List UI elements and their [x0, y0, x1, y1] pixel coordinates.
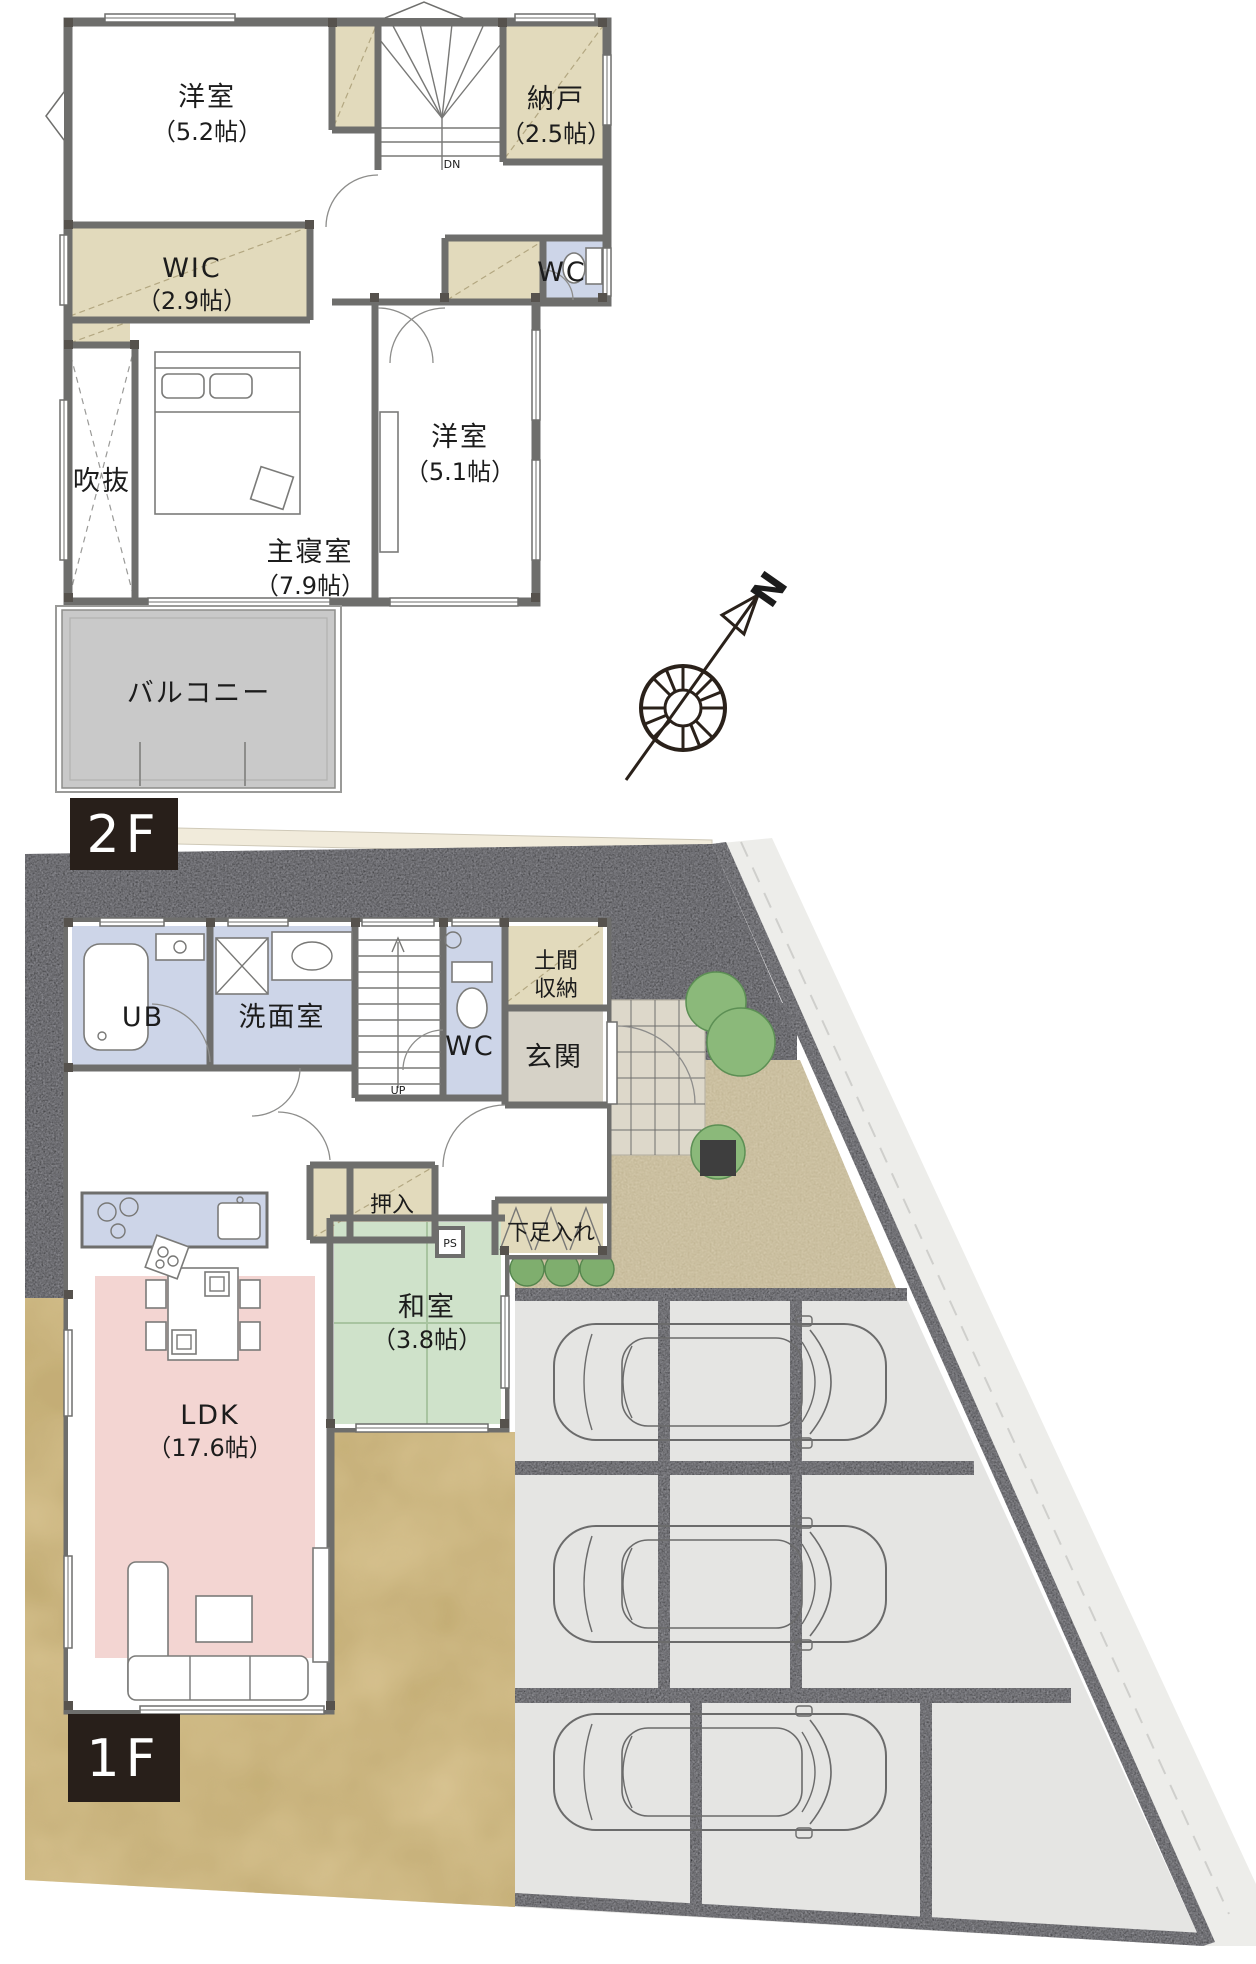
label-getabako: 下足入れ: [507, 1221, 595, 1246]
label-wic-size: （2.9帖）: [137, 287, 247, 315]
label-wc-1f: WC: [445, 1031, 495, 1062]
label-oshiire: 押入: [370, 1193, 414, 1218]
svg-text:1F: 1F: [87, 1729, 162, 1789]
label-wc-2f: WC: [537, 257, 587, 288]
compass-icon: N: [626, 564, 796, 780]
label-wic: WIC: [162, 253, 222, 284]
label-dn: DN: [444, 158, 461, 171]
label-nando-size: （2.5帖）: [501, 120, 611, 148]
label-y52-size: （5.2帖）: [152, 118, 262, 146]
label-nando: 納戸: [527, 84, 585, 115]
floorplan-svg: UB 洗面室 WC 玄関 土間 収納 押入 PS 下足入れ 和室 （3.8帖） …: [0, 0, 1256, 1960]
label-ldk-size: （17.6帖）: [147, 1434, 272, 1462]
label-ldk: LDK: [180, 1400, 240, 1431]
label-ps: PS: [443, 1237, 457, 1250]
label-y52: 洋室: [178, 82, 236, 113]
tv-board-2f: [380, 412, 398, 552]
label-master: 主寝室: [267, 537, 354, 568]
floor-2f: 洋室 （5.2帖） 納戸 （2.5帖） WIC （2.9帖） WC 吹抜 主寝室…: [46, 2, 611, 792]
svg-text:2F: 2F: [87, 805, 162, 865]
label-ub: UB: [122, 1002, 164, 1033]
tag-1f: 1F: [68, 1714, 180, 1802]
label-master-size: （7.9帖）: [255, 572, 365, 600]
label-fukinuke: 吹抜: [73, 466, 131, 497]
label-washitsu-size: （3.8帖）: [372, 1326, 482, 1354]
garden-stone: [700, 1140, 736, 1176]
label-washitsu: 和室: [398, 1292, 456, 1323]
bed-icon: [155, 352, 300, 514]
label-balcony: バルコニー: [127, 678, 271, 709]
floorplan-canvas: UB 洗面室 WC 玄関 土間 収納 押入 PS 下足入れ 和室 （3.8帖） …: [0, 0, 1256, 1960]
label-senmen: 洗面室: [239, 1002, 326, 1033]
label-y51-size: （5.1帖）: [405, 458, 515, 486]
label-doma-2: 収納: [534, 977, 578, 1002]
label-genkan: 玄関: [525, 1042, 583, 1073]
tag-2f: 2F: [70, 798, 178, 870]
label-y51: 洋室: [431, 422, 489, 453]
label-up: UP: [391, 1084, 406, 1097]
label-doma-1: 土間: [534, 949, 578, 974]
